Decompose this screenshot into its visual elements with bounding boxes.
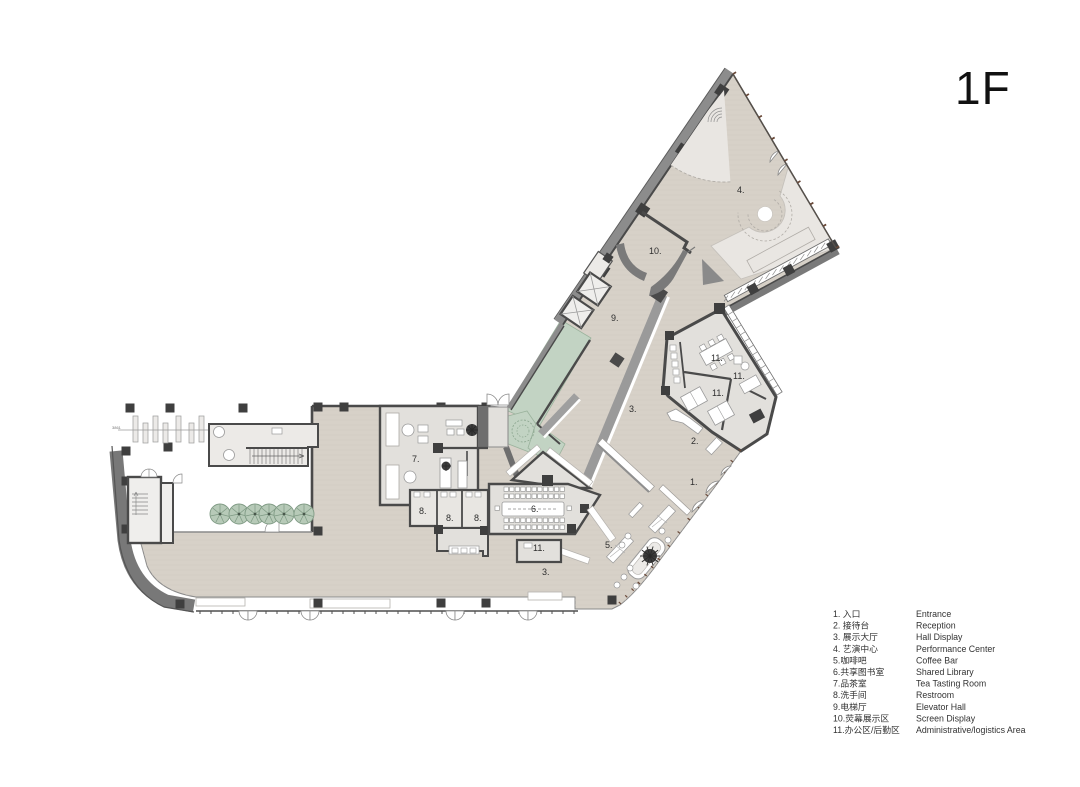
svg-text:Elevator Hall: Elevator Hall bbox=[916, 702, 966, 712]
svg-text:3. 展示大厅: 3. 展示大厅 bbox=[833, 631, 878, 642]
svg-text:3.: 3. bbox=[542, 567, 550, 577]
svg-text:Coffee Bar: Coffee Bar bbox=[916, 655, 958, 665]
svg-text:11.: 11. bbox=[712, 388, 724, 398]
svg-text:11.: 11. bbox=[733, 371, 745, 381]
svg-text:4. 艺演中心: 4. 艺演中心 bbox=[833, 643, 878, 654]
svg-text:Shared Library: Shared Library bbox=[916, 667, 974, 677]
svg-text:11.: 11. bbox=[711, 353, 723, 363]
svg-text:11.: 11. bbox=[533, 543, 545, 553]
svg-text:4.: 4. bbox=[737, 185, 745, 195]
svg-text:8.: 8. bbox=[446, 513, 454, 523]
svg-text:Reception: Reception bbox=[916, 621, 956, 631]
svg-text:1. 入口: 1. 入口 bbox=[833, 609, 860, 619]
svg-text:Administrative/logistics Area: Administrative/logistics Area bbox=[916, 725, 1026, 735]
svg-text:11.办公区/后勤区: 11.办公区/后勤区 bbox=[833, 724, 900, 735]
svg-text:7.: 7. bbox=[412, 454, 420, 464]
svg-text:1F: 1F bbox=[955, 62, 1011, 114]
svg-text:Performance Center: Performance Center bbox=[916, 644, 995, 654]
svg-text:6.: 6. bbox=[531, 504, 539, 514]
svg-text:Restroom: Restroom bbox=[916, 690, 954, 700]
svg-text:5.咖啡吧: 5.咖啡吧 bbox=[833, 654, 867, 665]
svg-text:8.洗手间: 8.洗手间 bbox=[833, 689, 867, 700]
svg-text:8.: 8. bbox=[474, 513, 482, 523]
svg-text:3.: 3. bbox=[629, 404, 637, 414]
svg-text:7.品茶室: 7.品茶室 bbox=[833, 678, 867, 689]
svg-text:10.荧幕展示区: 10.荧幕展示区 bbox=[833, 712, 889, 723]
svg-text:Screen Display: Screen Display bbox=[916, 713, 976, 723]
svg-text:Entrance: Entrance bbox=[916, 609, 951, 619]
svg-text:Hall Display: Hall Display bbox=[916, 632, 963, 642]
svg-text:3861: 3861 bbox=[112, 425, 122, 430]
svg-text:1.: 1. bbox=[690, 477, 698, 487]
svg-text:6.共享图书室: 6.共享图书室 bbox=[833, 666, 885, 677]
svg-text:9.电梯厅: 9.电梯厅 bbox=[833, 701, 867, 712]
svg-text:Tea Tasting Room: Tea Tasting Room bbox=[916, 679, 986, 689]
svg-text:10.: 10. bbox=[649, 246, 662, 256]
svg-text:2. 接待台: 2. 接待台 bbox=[833, 620, 869, 631]
svg-text:9.: 9. bbox=[611, 313, 619, 323]
svg-text:2.: 2. bbox=[691, 436, 699, 446]
svg-text:5.: 5. bbox=[605, 540, 613, 550]
svg-text:8.: 8. bbox=[419, 506, 427, 516]
